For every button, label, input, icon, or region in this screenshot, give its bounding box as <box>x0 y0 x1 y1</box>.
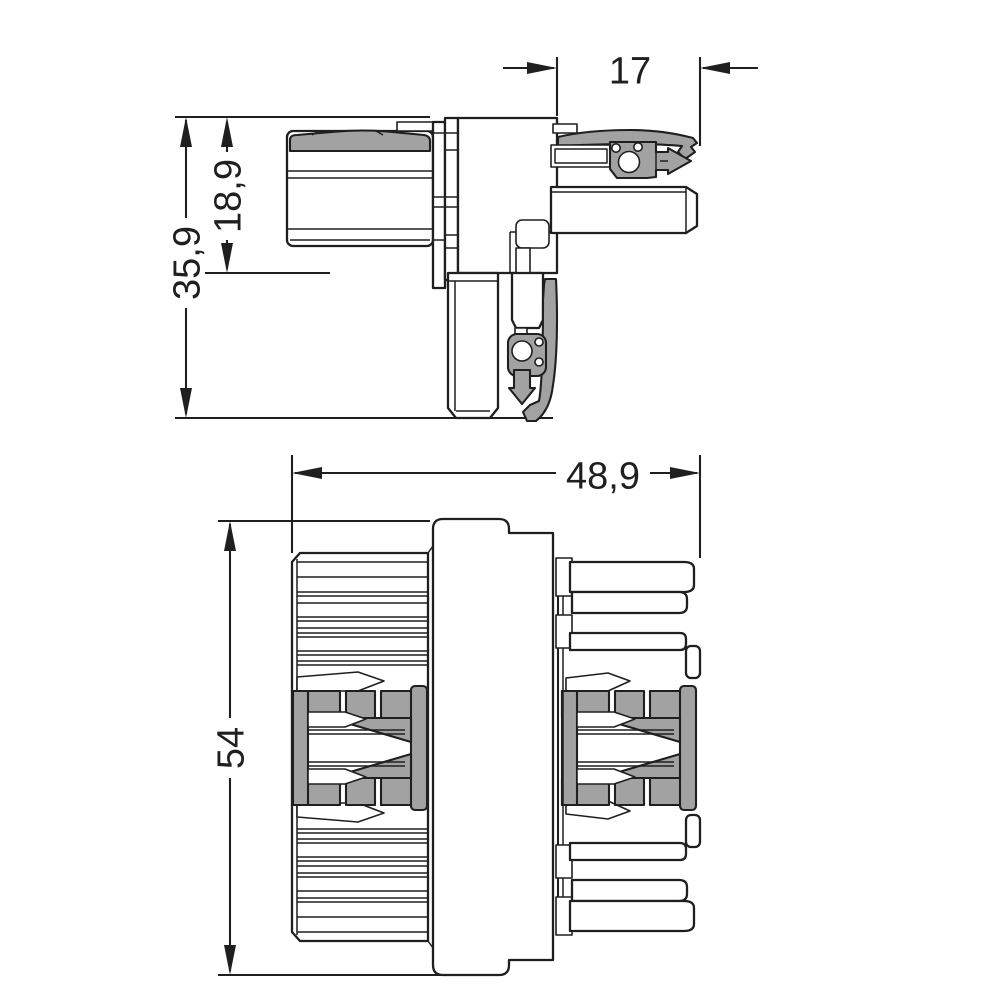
pivot-hole <box>619 152 640 173</box>
arrowhead-down <box>221 243 233 273</box>
dim-label-total-width: 48,9 <box>566 455 640 497</box>
contact-prong <box>572 880 687 901</box>
technical-drawing-page: 35,9 18,9 17 <box>0 0 991 1000</box>
keying-tab <box>566 673 630 691</box>
arrowhead-up <box>221 117 233 147</box>
prong-cap <box>686 646 700 678</box>
prong-cap <box>686 815 700 847</box>
contact-prong <box>572 592 687 613</box>
left-plug-housing <box>287 131 433 247</box>
mounting-step <box>516 220 549 248</box>
dim-label-front-total-height: 54 <box>210 727 252 769</box>
arrowhead-up <box>180 117 192 147</box>
side-view-drawing <box>287 118 697 421</box>
front-view-drawing <box>292 519 700 975</box>
connector-dimension-drawing: 35,9 18,9 17 <box>0 0 991 1000</box>
contact-prong <box>570 562 694 592</box>
arrowhead-right <box>527 62 557 74</box>
housing-outline <box>292 553 428 941</box>
plug-top-seal <box>290 131 430 152</box>
contact-prong <box>570 633 686 650</box>
dim-label-total-height: 35,9 <box>166 226 208 300</box>
right-plug <box>551 187 697 233</box>
side-view: 35,9 18,9 17 <box>166 50 758 421</box>
main-body <box>458 118 557 273</box>
arrowhead-down <box>180 388 192 418</box>
right-plug-body <box>551 187 697 233</box>
latch-side-rail <box>411 686 427 810</box>
arrowhead-left <box>292 467 322 479</box>
top-rib-tab <box>397 122 433 131</box>
arrowhead-left <box>700 62 730 74</box>
center-flange <box>433 519 553 975</box>
front-view: 48,9 54 <box>210 455 700 975</box>
right-strain-relief-latch <box>551 124 697 178</box>
dim-label-upper-height: 18,9 <box>207 159 249 233</box>
arrowhead-up <box>224 521 236 551</box>
left-ribbed-housing <box>292 553 428 941</box>
arrowhead-down <box>224 945 236 975</box>
arrowhead-right <box>670 467 700 479</box>
latch-frame-right <box>562 686 696 810</box>
contact-prong <box>570 843 686 860</box>
dim-label-section-width: 17 <box>609 50 651 92</box>
contact-prong <box>570 901 694 931</box>
pivot-hole <box>512 341 532 361</box>
